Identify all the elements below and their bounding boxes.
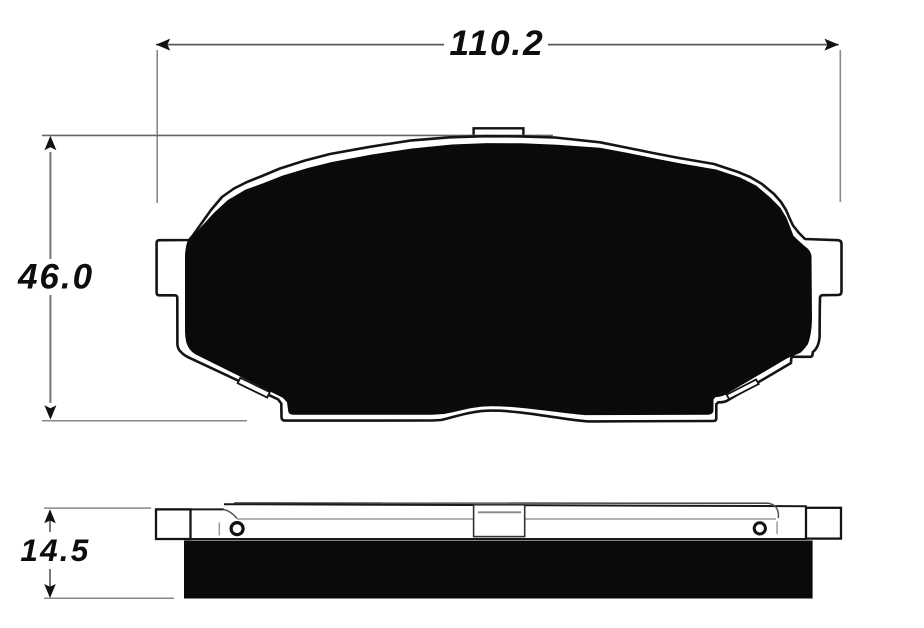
svg-text:110.2: 110.2 xyxy=(449,23,544,63)
svg-text:14.5: 14.5 xyxy=(20,532,90,568)
svg-text:46.0: 46.0 xyxy=(17,258,94,297)
